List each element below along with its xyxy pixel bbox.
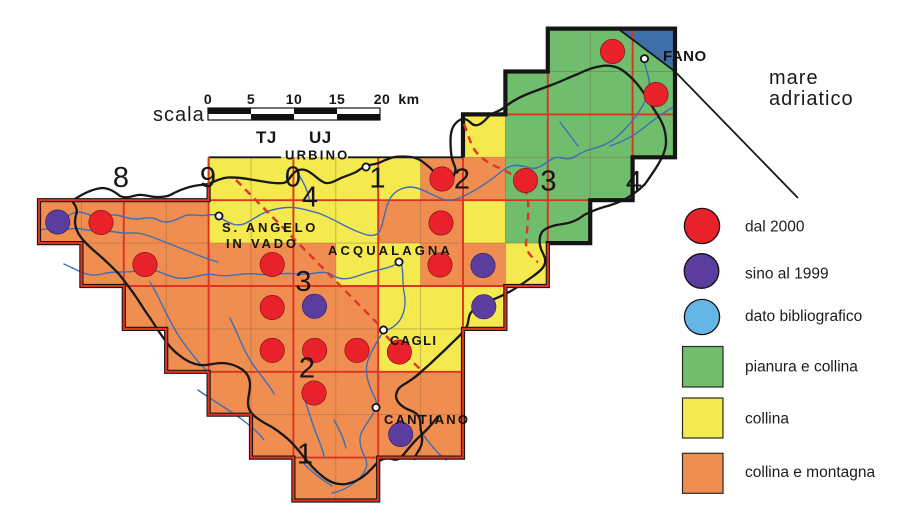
svg-text:4: 4 xyxy=(626,166,642,198)
svg-text:5: 5 xyxy=(247,91,255,107)
svg-text:1: 1 xyxy=(297,439,313,471)
svg-text:mare: mare xyxy=(769,67,819,89)
svg-text:URBINO: URBINO xyxy=(285,148,349,163)
svg-text:ACQUALAGNA: ACQUALAGNA xyxy=(328,243,453,258)
svg-text:3: 3 xyxy=(540,166,556,198)
svg-text:4: 4 xyxy=(302,182,318,214)
svg-text:3: 3 xyxy=(295,266,311,298)
svg-text:FANO: FANO xyxy=(663,48,707,65)
svg-text:0: 0 xyxy=(204,91,212,107)
svg-text:15: 15 xyxy=(329,91,346,107)
svg-text:20: 20 xyxy=(374,91,391,107)
svg-text:dal 2000: dal 2000 xyxy=(745,219,805,236)
svg-text:pianura e collina: pianura e collina xyxy=(745,359,858,376)
svg-text:collina: collina xyxy=(745,411,789,428)
svg-text:km: km xyxy=(398,91,419,107)
svg-text:scala: scala xyxy=(153,104,205,126)
svg-text:adriatico: adriatico xyxy=(769,88,854,110)
svg-text:CAGLI: CAGLI xyxy=(390,333,437,348)
svg-text:IN VADO: IN VADO xyxy=(226,236,299,251)
svg-text:1: 1 xyxy=(369,163,385,195)
svg-text:0: 0 xyxy=(285,162,301,194)
svg-text:8: 8 xyxy=(113,162,129,194)
svg-text:UJ: UJ xyxy=(309,128,332,147)
svg-text:collina e montagna: collina e montagna xyxy=(745,464,875,481)
svg-text:10: 10 xyxy=(286,91,303,107)
svg-text:2: 2 xyxy=(454,164,470,196)
svg-text:sino al 1999: sino al 1999 xyxy=(745,266,829,283)
svg-text:TJ: TJ xyxy=(256,128,277,147)
svg-text:9: 9 xyxy=(200,162,216,194)
svg-text:S. ANGELO: S. ANGELO xyxy=(222,220,318,235)
svg-text:CANTIANO: CANTIANO xyxy=(384,412,470,427)
svg-text:dato bibliografico: dato bibliografico xyxy=(745,308,862,325)
svg-text:2: 2 xyxy=(299,353,315,385)
